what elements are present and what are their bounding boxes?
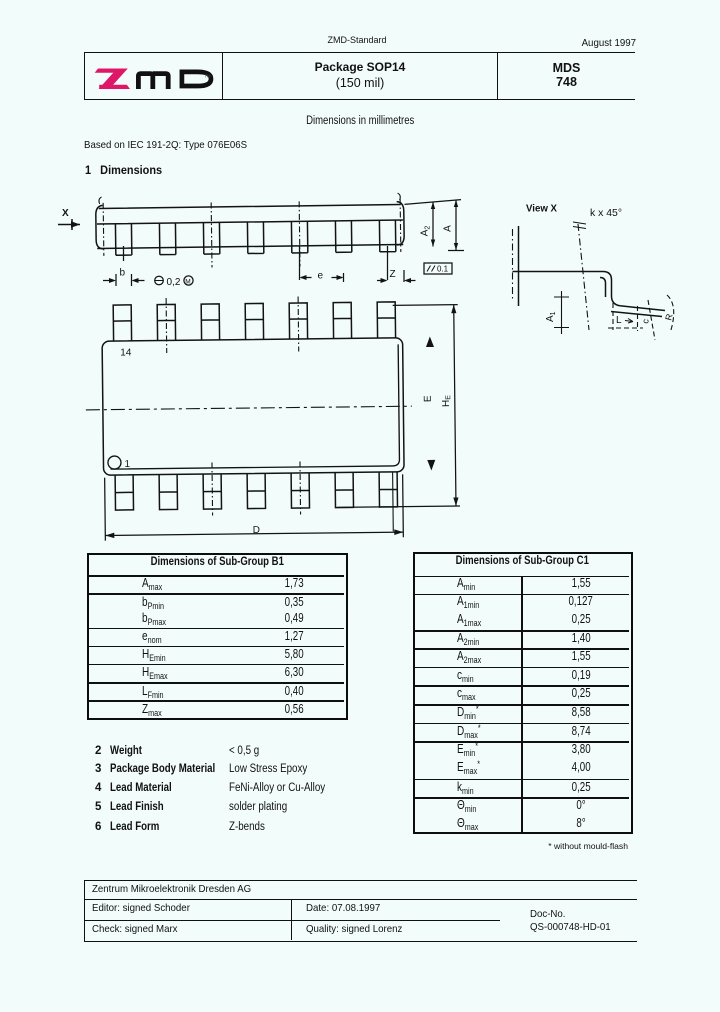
svg-text:0.1: 0.1	[437, 265, 449, 274]
svg-text:R: R	[663, 312, 674, 321]
svg-text:e: e	[318, 271, 324, 282]
svg-text:M: M	[185, 279, 190, 286]
svg-text:1: 1	[124, 459, 130, 470]
svg-text:b: b	[120, 268, 126, 279]
svg-text:HE: HE	[441, 395, 452, 407]
svg-text:A1: A1	[545, 311, 557, 322]
svg-text:14: 14	[120, 347, 132, 358]
svg-text:A2: A2	[420, 226, 432, 237]
svg-text:L: L	[616, 315, 622, 326]
svg-text:View X: View X	[526, 203, 557, 215]
svg-text:c: c	[640, 318, 651, 325]
svg-text:0,2: 0,2	[167, 277, 181, 288]
svg-text:E: E	[423, 395, 434, 402]
svg-text:A: A	[443, 225, 454, 232]
svg-text:Z: Z	[390, 269, 396, 280]
svg-text:D: D	[253, 525, 260, 536]
svg-text:k x 45°: k x 45°	[590, 207, 622, 219]
svg-text:X: X	[62, 208, 69, 219]
